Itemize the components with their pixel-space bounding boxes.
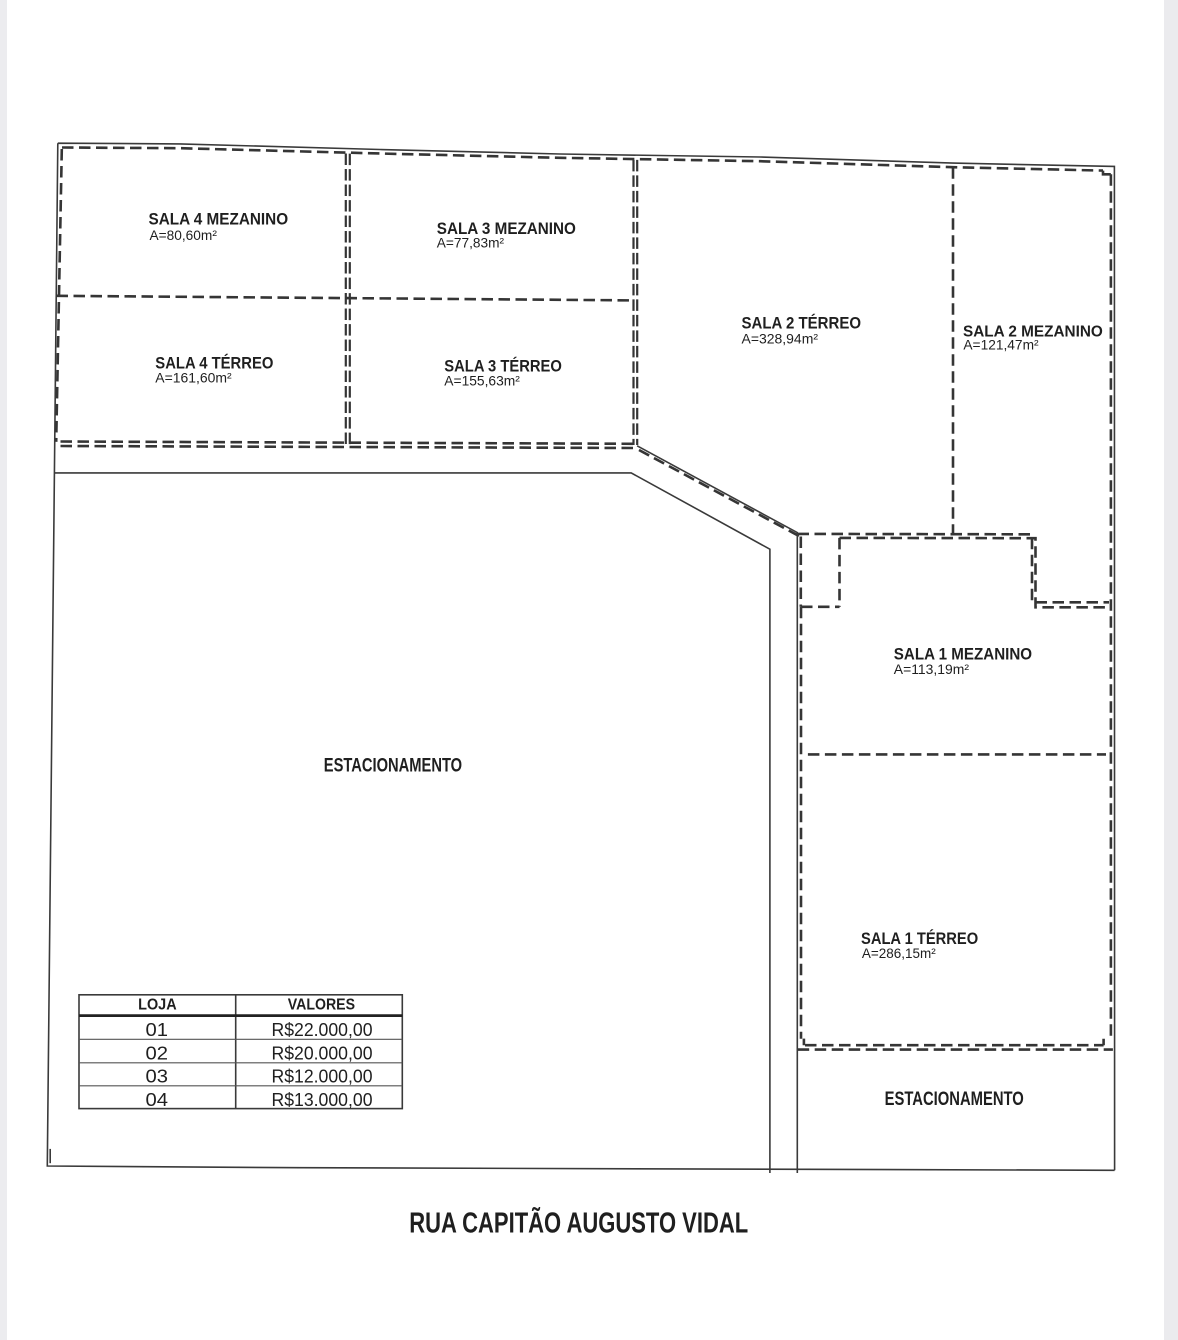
svg-text:A=328,94m²: A=328,94m²: [742, 330, 819, 346]
svg-text:A=121,47m²: A=121,47m²: [963, 336, 1039, 352]
svg-text:A=80,60m²: A=80,60m²: [150, 227, 218, 243]
svg-text:R$22.000,00: R$22.000,00: [272, 1019, 373, 1040]
svg-text:A=113,19m²: A=113,19m²: [894, 661, 970, 677]
svg-text:VALORES: VALORES: [288, 996, 355, 1013]
svg-text:ESTACIONAMENTO: ESTACIONAMENTO: [885, 1089, 1024, 1110]
svg-text:04: 04: [146, 1089, 169, 1110]
svg-text:R$20.000,00: R$20.000,00: [272, 1042, 373, 1063]
svg-text:02: 02: [146, 1042, 169, 1063]
svg-text:A=155,63m²: A=155,63m²: [444, 373, 520, 389]
svg-text:RUA CAPITÃO AUGUSTO VIDAL: RUA CAPITÃO AUGUSTO VIDAL: [409, 1207, 748, 1239]
svg-text:LOJA: LOJA: [138, 997, 177, 1014]
svg-text:ESTACIONAMENTO: ESTACIONAMENTO: [324, 756, 462, 777]
svg-text:01: 01: [146, 1019, 169, 1040]
svg-text:R$13.000,00: R$13.000,00: [272, 1089, 373, 1110]
svg-text:A=161,60m²: A=161,60m²: [155, 370, 232, 386]
svg-text:R$12.000,00: R$12.000,00: [272, 1066, 373, 1087]
svg-text:A=286,15m²: A=286,15m²: [862, 945, 936, 961]
svg-text:03: 03: [146, 1066, 169, 1087]
svg-text:A=77,83m²: A=77,83m²: [437, 234, 505, 250]
svg-text:SALA 4 MEZANINO: SALA 4 MEZANINO: [149, 210, 289, 228]
